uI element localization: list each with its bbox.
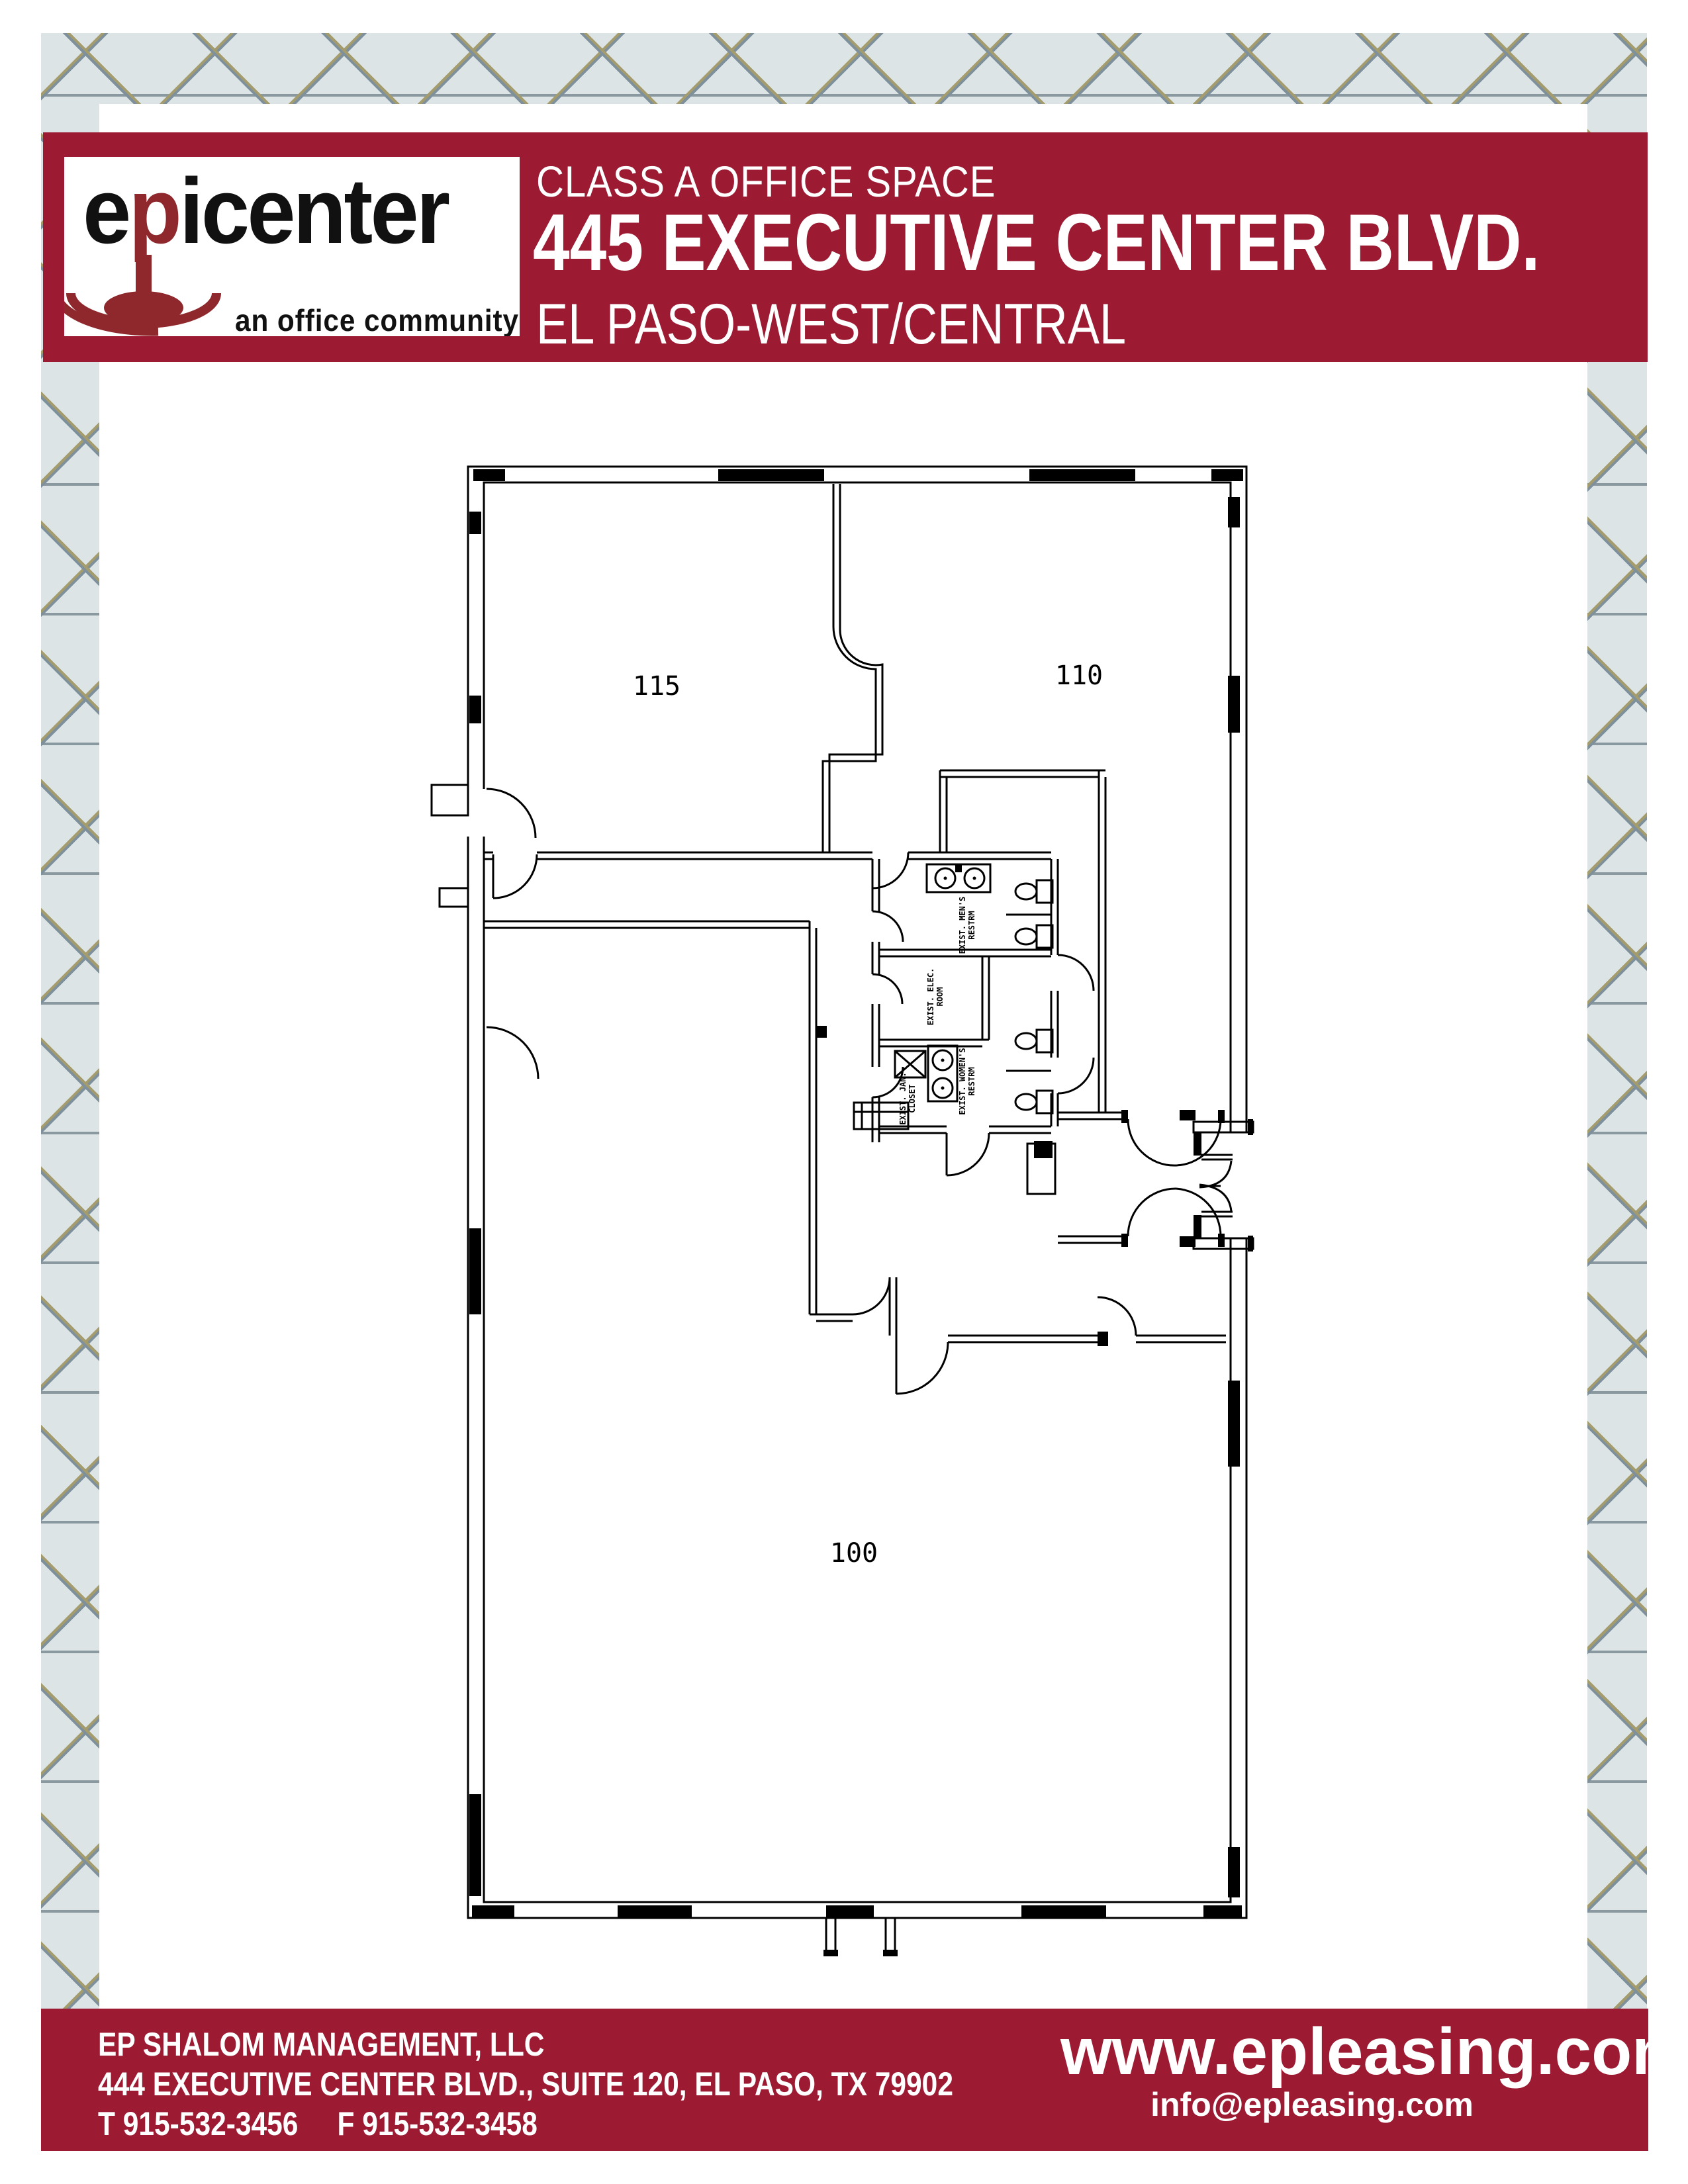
- mens-restrm-label: EXIST. MEN'S RESTRM: [958, 897, 976, 954]
- womens-restrm-label: EXIST. WOMEN'S RESTRM: [958, 1048, 976, 1115]
- logo-letters-center: center: [201, 159, 447, 263]
- logo-letter-e: e: [83, 159, 128, 263]
- footer-website: www.epleasing.com: [1060, 2014, 1564, 2090]
- floor-plan: 115 110 100 EXIST. MEN'S RESTRM EXIST. E…: [424, 410, 1297, 1999]
- footer-address: 444 EXECUTIVE CENTER BLVD., SUITE 120, E…: [98, 2064, 953, 2104]
- core-right-wall: [1051, 859, 1094, 1126]
- bottom-stubs: [823, 1918, 898, 1956]
- south-walls: [810, 1277, 1226, 1394]
- room-115-label: 115: [633, 671, 680, 702]
- logo-letter-i: i: [179, 159, 201, 263]
- footer-company: EP SHALOM MANAGEMENT, LLC: [98, 2025, 953, 2064]
- svg-text:RESTRM: RESTRM: [967, 1067, 976, 1095]
- core-bottom-walls: [854, 1103, 1055, 1194]
- svg-text:EXIST. JAN.: EXIST. JAN.: [898, 1072, 908, 1124]
- svg-text:ROOM: ROOM: [935, 987, 945, 1007]
- svg-text:EXIST. WOMEN'S: EXIST. WOMEN'S: [958, 1048, 967, 1115]
- exterior-walls: [468, 467, 1246, 1918]
- partition-115-110: [823, 484, 882, 852]
- footer-email: info@epleasing.com: [1060, 2085, 1564, 2124]
- womens-restroom: [928, 1030, 1053, 1113]
- window-marks: [469, 469, 1243, 1917]
- svg-text:EXIST. MEN'S: EXIST. MEN'S: [958, 897, 967, 954]
- epicenter-logo-wordmark: epicenter: [83, 165, 447, 257]
- footer-phones: T 915-532-3456 F 915-532-3458: [98, 2104, 953, 2144]
- svg-text:CLOSET: CLOSET: [908, 1084, 917, 1113]
- entry-vestibule: [1058, 1110, 1253, 1251]
- logo-box: epicenter an office community: [64, 157, 520, 336]
- header-address-title: 445 EXECUTIVE CENTER BLVD.: [533, 196, 1540, 289]
- room-100-label: 100: [830, 1538, 878, 1569]
- elec-room-label: EXIST. ELEC. ROOM: [926, 968, 945, 1026]
- room-110-label: 110: [1055, 660, 1103, 691]
- header-banner: epicenter an office community CLASS A OF…: [43, 132, 1648, 362]
- svg-text:EXIST. ELEC.: EXIST. ELEC.: [926, 968, 935, 1026]
- logo-letter-p: p: [128, 159, 179, 263]
- logo-tagline: an office community: [235, 302, 519, 336]
- flyer-page: epicenter an office community CLASS A OF…: [0, 0, 1688, 2184]
- entry-opening: [1224, 1132, 1250, 1239]
- svg-text:RESTRM: RESTRM: [967, 911, 976, 939]
- footer-contact-block: EP SHALOM MANAGEMENT, LLC 444 EXECUTIVE …: [98, 2025, 1104, 2144]
- header-location: EL PASO-WEST/CENTRAL: [536, 292, 1126, 357]
- footer-banner: EP SHALOM MANAGEMENT, LLC 444 EXECUTIVE …: [41, 2009, 1648, 2151]
